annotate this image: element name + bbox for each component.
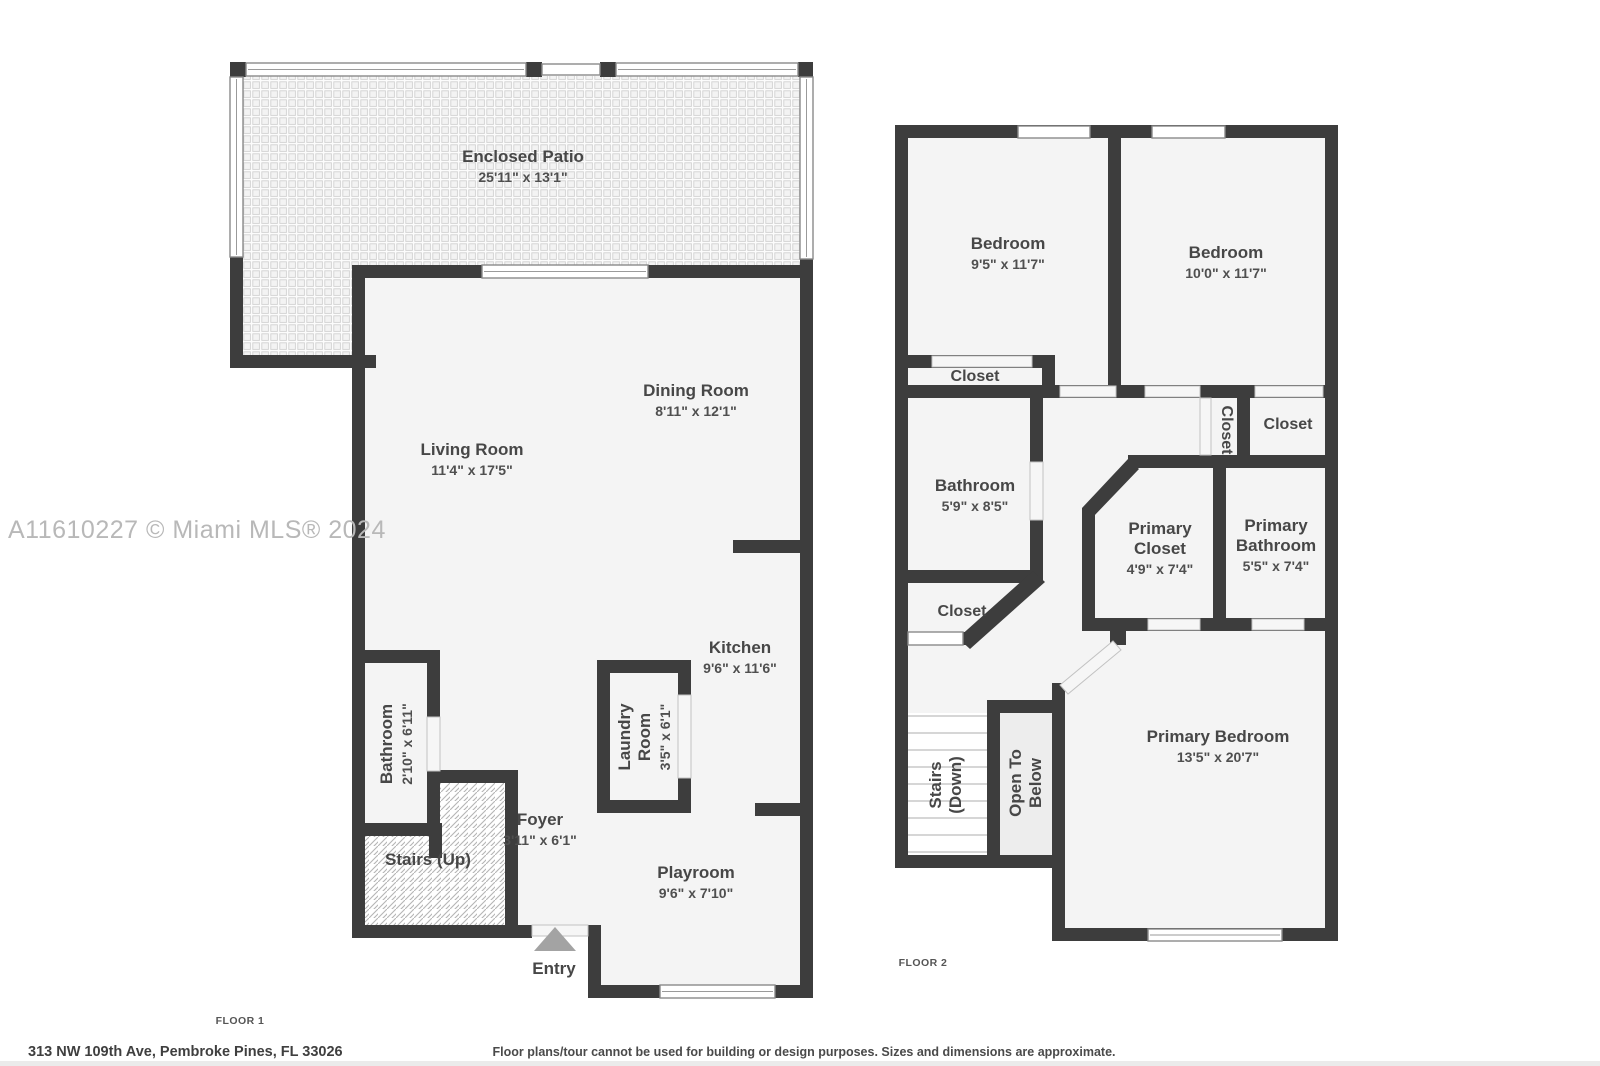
room-label-closet-bedroom-right: Closet [1264, 416, 1313, 434]
room-label-closet-bedroom-left: Closet [951, 368, 1000, 386]
room-label-closet-hall: Closet [1217, 406, 1235, 455]
disclaimer-text: Floor plans/tour cannot be used for buil… [492, 1045, 1115, 1059]
room-label-kitchen: Kitchen 9'6" x 11'6" [703, 638, 777, 676]
room-label-living-room: Living Room 11'4" x 17'5" [421, 440, 524, 478]
room-label-stairs-down: Stairs (Down) [926, 751, 966, 819]
room-label-bedroom-left: Bedroom 9'5" x 11'7" [971, 234, 1046, 272]
room-label-bathroom-floor2: Bathroom 5'9" x 8'5" [935, 476, 1015, 514]
mls-watermark: A11610227 © Miami MLS® 2024 [8, 516, 386, 545]
room-label-primary-bedroom: Primary Bedroom 13'5" x 20'7" [1147, 727, 1290, 765]
room-label-closet-bathroom: Closet [938, 603, 987, 621]
room-label-stairs-up: Stairs (Up) [385, 850, 471, 870]
room-label-bedroom-right: Bedroom 10'0" x 11'7" [1185, 243, 1266, 281]
room-label-foyer: Foyer 3'11" x 6'1" [503, 810, 577, 848]
property-address: 313 NW 109th Ave, Pembroke Pines, FL 330… [28, 1044, 343, 1060]
floorplan-page: Enclosed Patio 25'11" x 13'1" Living Roo… [0, 0, 1600, 1066]
room-label-laundry-room: Laundry Room 3'5" x 6'1" [615, 691, 673, 783]
room-label-entry: Entry [532, 959, 575, 979]
bottom-edge-strip [0, 1061, 1600, 1066]
room-label-bathroom-floor1: Bathroom 2'10" x 6'11" [377, 684, 415, 804]
room-label-enclosed-patio: Enclosed Patio 25'11" x 13'1" [462, 147, 584, 185]
room-label-open-to-below: Open To Below [1006, 745, 1046, 821]
floor1-tag: FLOOR 1 [216, 1015, 265, 1027]
room-label-playroom: Playroom 9'6" x 7'10" [657, 863, 734, 901]
floor2-tag: FLOOR 2 [899, 957, 948, 969]
room-label-primary-closet: Primary Closet 4'9" x 7'4" [1113, 519, 1208, 577]
room-label-primary-bathroom: Primary Bathroom 5'5" x 7'4" [1222, 516, 1330, 574]
room-label-dining-room: Dining Room 8'11" x 12'1" [643, 381, 749, 419]
